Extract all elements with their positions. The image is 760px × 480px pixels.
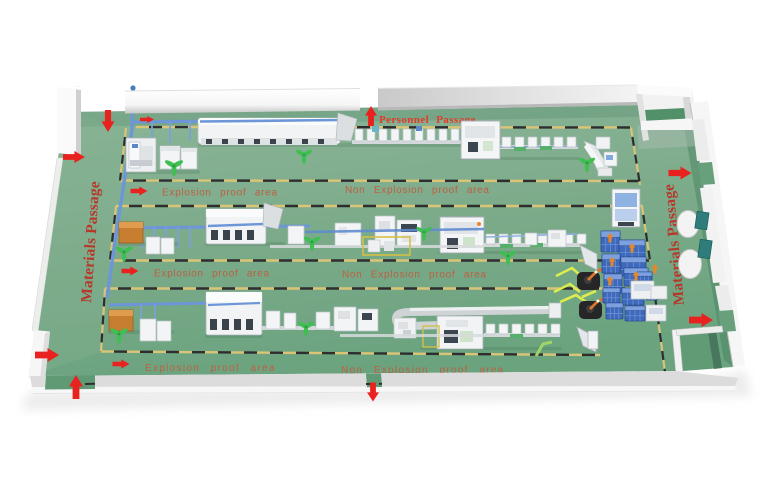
svg-text:Explosion proof area: Explosion proof area [162, 188, 278, 199]
svg-text:Explosion proof area: Explosion proof area [154, 269, 270, 280]
svg-text:Non Explosion proof area: Non Explosion proof area [342, 270, 487, 281]
svg-text:Non Explosion proof area: Non Explosion proof area [345, 185, 490, 196]
svg-text:Explosion proof area: Explosion proof area [145, 363, 276, 374]
